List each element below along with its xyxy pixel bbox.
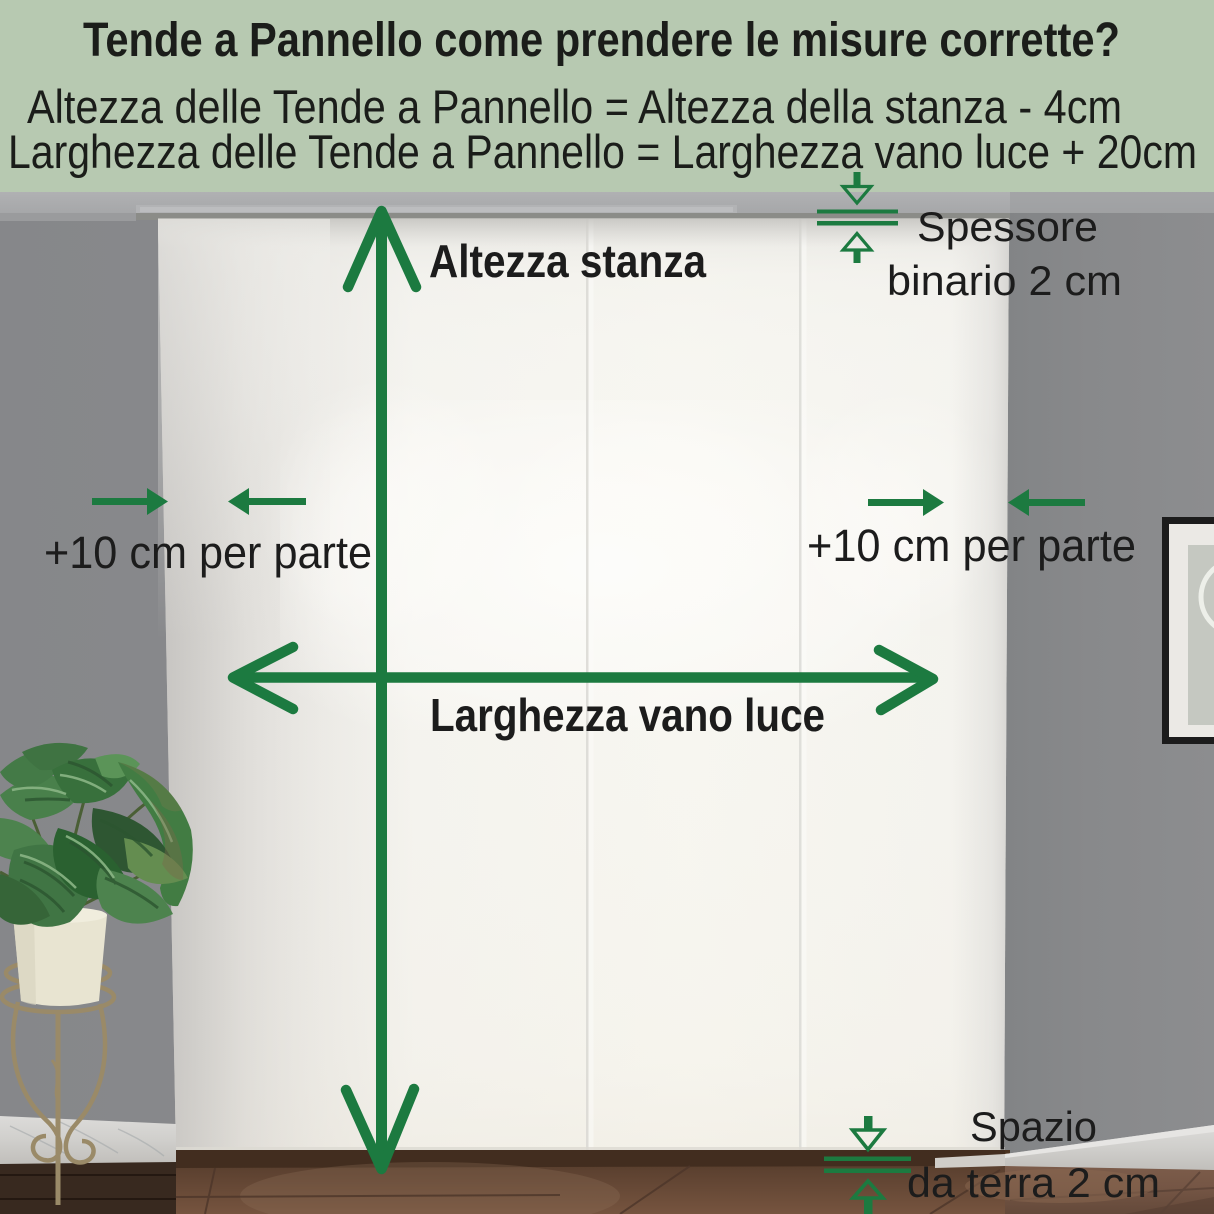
svg-text:Larghezza vano luce: Larghezza vano luce: [430, 689, 825, 741]
svg-text:+10 cm per parte: +10 cm per parte: [807, 520, 1136, 571]
svg-text:Tende a Pannello come prendere: Tende a Pannello come prendere le misure…: [83, 14, 1120, 67]
svg-text:Larghezza delle Tende a Pannel: Larghezza delle Tende a Pannello = Largh…: [8, 125, 1197, 178]
svg-text:da terra 2 cm: da terra 2 cm: [907, 1159, 1160, 1206]
svg-text:binario 2 cm: binario 2 cm: [887, 257, 1122, 304]
svg-text:Spessore: Spessore: [917, 203, 1098, 250]
svg-text:Spazio: Spazio: [970, 1103, 1097, 1150]
svg-text:Altezza stanza: Altezza stanza: [429, 235, 706, 287]
svg-text:+10 cm per parte: +10 cm per parte: [44, 527, 372, 578]
